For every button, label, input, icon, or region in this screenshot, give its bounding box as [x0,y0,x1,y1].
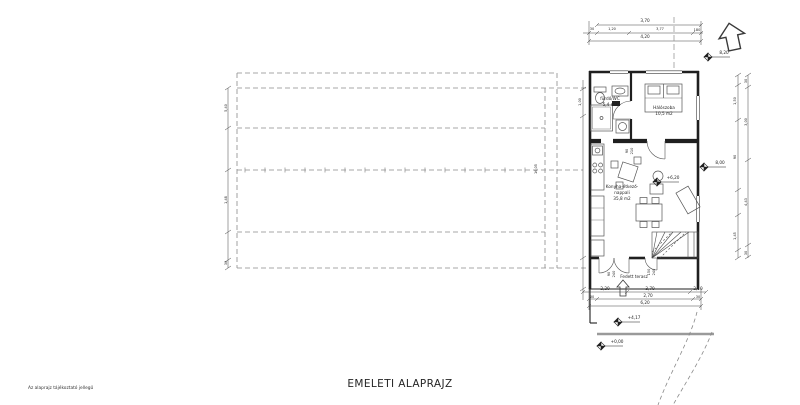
dim-right-a: 30 [744,79,748,83]
level-roof-label: 8,20 [719,51,728,55]
right-dim-chain [735,73,751,260]
dim-bottom-c: 2,10 [693,287,702,291]
dim-bottom-e: 2,70 [643,294,652,298]
terrain-dashed-lines [658,312,712,405]
room-living-area: 35,8 m2 [613,197,630,201]
dim-left-d: 1,00 [578,98,582,106]
room-terrace-name: Fedett terasz [620,275,648,279]
dim-bottom-f: 30 [696,295,700,299]
dim-right-d: 90 [733,155,737,159]
room-living-name2: nappali [614,191,629,195]
dim-right-e: 4,43 [744,198,748,206]
bottom-dim-chain [581,288,708,310]
dim-right-f: 1,45 [733,232,737,240]
room-bedroom-area: 10,5 m2 [655,112,672,116]
sheet-title: EMELETI ALAPRAJZ [347,379,452,390]
dim-bottom-b: 3,70 [645,287,654,291]
dim-top-d: 180 [694,28,701,32]
dim-top-total: 4,20 [640,35,649,39]
dim-left-len: 16,05 [534,164,538,174]
sheet-footnote: Az alaprajz tájékoztató jellegű [28,386,93,391]
dim-right-b: 1,50 [733,97,737,105]
level-eaves-label: 8,00 [715,161,724,165]
bathroom-fixtures [591,86,630,133]
dim-right-g: 30 [744,251,748,255]
kitchen-fixtures [591,144,604,256]
door-size-a2: 240 [612,271,616,278]
dim-left-c: 30 [224,261,228,265]
level-ground-label: +0,00 [611,340,624,344]
door-size-a1: 90 [607,272,611,276]
floorplan-sheet: 3,70 30 1,20 3,77 180 4,20 8,20 8,00 +6,… [0,0,800,405]
dim-top-span: 3,70 [640,19,649,23]
dim-bottom-a: 2,20 [600,287,609,291]
plan-walls [589,71,699,323]
room-living-name1: Konyha-étkező- [606,185,638,189]
top-dim-chain [583,21,703,45]
level-terrace-label: +4,17 [628,316,641,320]
door-size-b2: 240 [652,269,656,276]
dim-left-b: 1,48 [224,196,228,204]
door-size-c1: 90 [625,149,629,153]
dim-top-a: 30 [590,27,594,31]
dim-bottom-total: 6,20 [640,301,649,305]
dim-top-b: 1,20 [608,27,616,31]
left-dim-chain [225,80,586,300]
stairs [652,232,698,258]
door-size-c2: 210 [630,148,634,155]
door-size-b1: 150 [647,269,651,276]
level-floor-label: +6,20 [667,176,680,180]
dim-top-c: 3,77 [656,27,664,31]
room-bath-name: fürdő/WC [600,97,620,101]
room-bath-area: 5,4 m2 [603,103,618,107]
entry-arrow-icon [617,280,629,296]
floorplan-drawing [0,0,800,405]
dim-bottom-d: 30 [590,295,594,299]
room-bedroom-name: Hálószoba [653,106,675,110]
north-arrow-icon [716,21,747,53]
dim-right-c: 3,00 [744,118,748,126]
dim-left-a: 5,40 [224,104,228,112]
